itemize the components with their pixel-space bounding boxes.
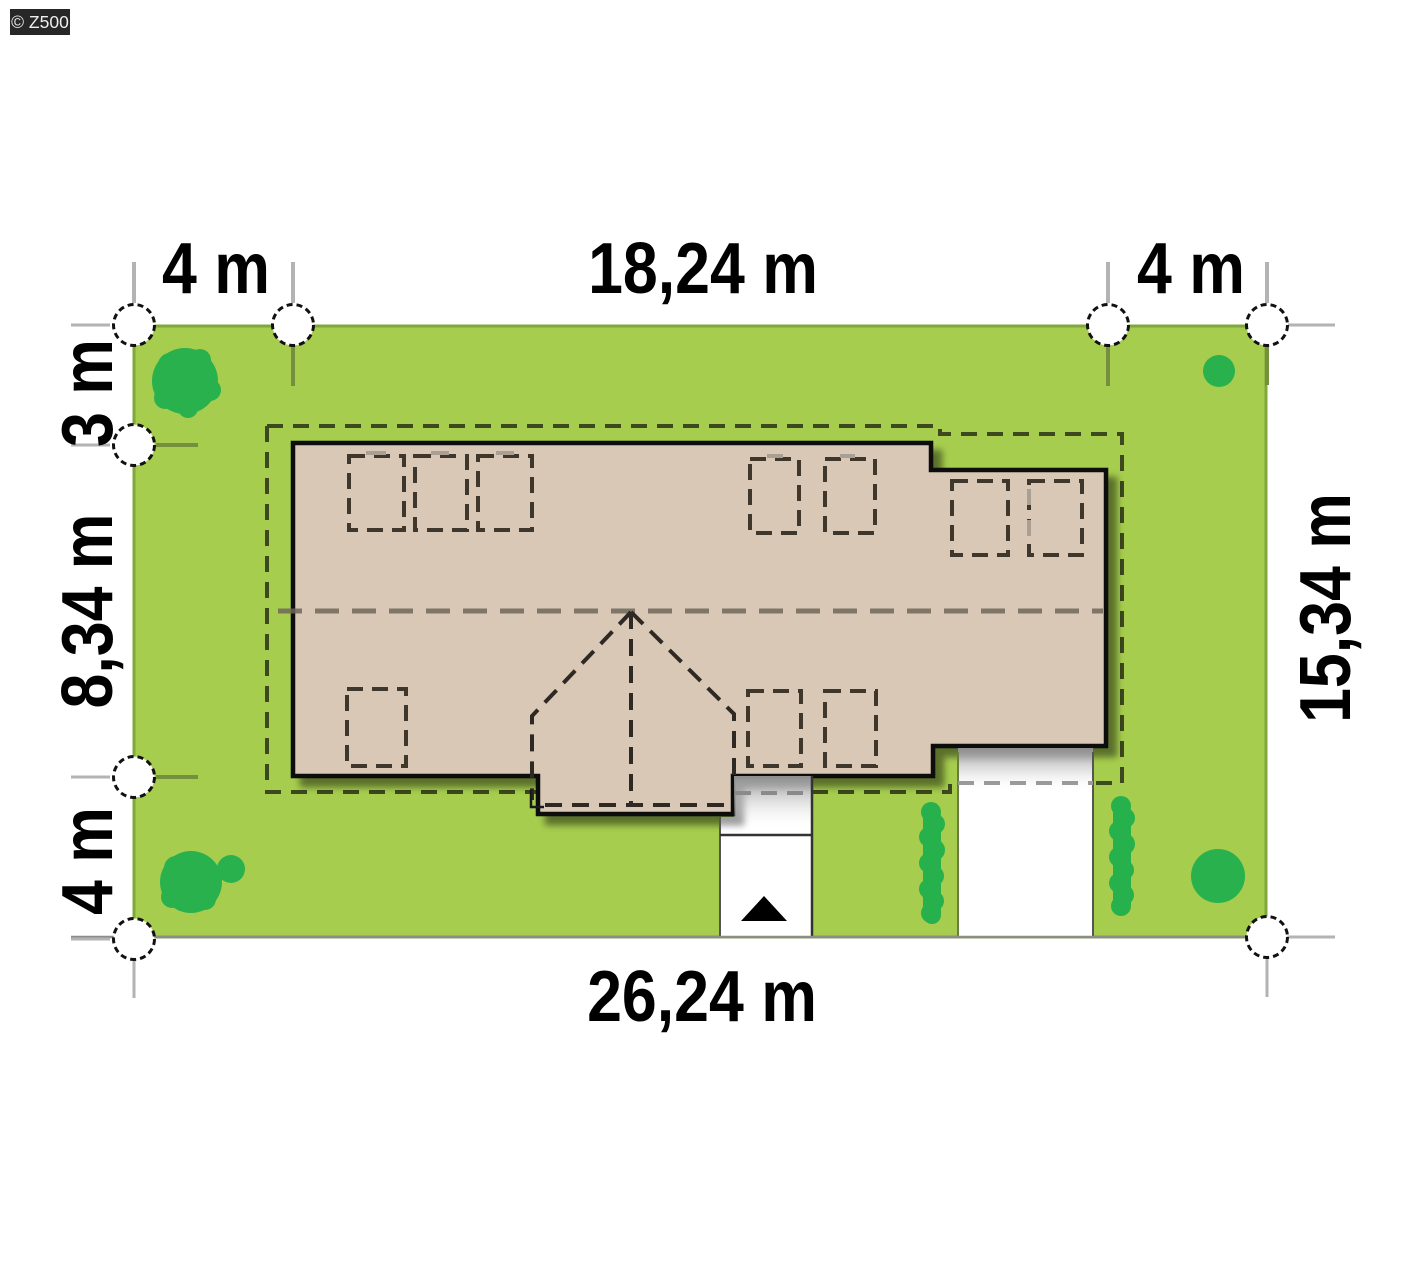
svg-text:26,24 m: 26,24 m <box>587 957 817 1037</box>
svg-text:4 m: 4 m <box>48 807 128 915</box>
svg-text:4 m: 4 m <box>1137 229 1245 309</box>
svg-text:8,34 m: 8,34 m <box>48 514 128 709</box>
svg-text:15,34 m: 15,34 m <box>1286 493 1366 723</box>
svg-text:4 m: 4 m <box>162 229 270 309</box>
svg-text:18,24 m: 18,24 m <box>588 229 818 309</box>
svg-text:© Z500: © Z500 <box>11 12 69 32</box>
svg-text:3 m: 3 m <box>48 339 128 447</box>
